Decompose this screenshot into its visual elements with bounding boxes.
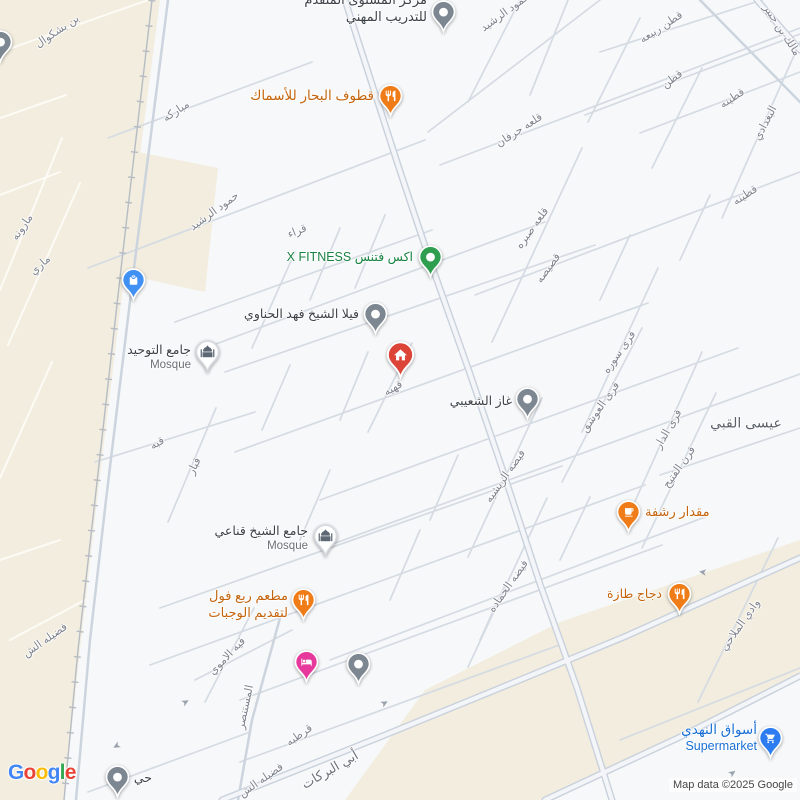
supermarket-pin[interactable] xyxy=(757,726,784,760)
google-logo-letter: G xyxy=(8,761,24,784)
mosque-tawhid-label[interactable]: جامع التوحيدMosque xyxy=(127,342,191,373)
villa-label[interactable]: فيلا الشيخ فهد الحناوي xyxy=(244,306,359,322)
training-center-label[interactable]: مركز المستوى المتقدمللتدريب المهني xyxy=(304,0,427,25)
oneway-arrow-icon: ➤ xyxy=(698,565,708,576)
google-logo-letter: e xyxy=(65,761,76,784)
villa-pin[interactable] xyxy=(362,302,389,336)
generic-poi-pin[interactable] xyxy=(0,30,14,64)
fitness-pin[interactable] xyxy=(417,245,444,279)
supermarket-label[interactable]: أسواق النهديSupermarket xyxy=(681,721,757,754)
map-canvas[interactable]: Google Map data ©2025 Google بن بشكوالمب… xyxy=(0,0,800,800)
home-pin[interactable] xyxy=(385,341,416,380)
street-label: عيسى القبي xyxy=(710,415,782,432)
google-logo[interactable]: Google xyxy=(8,761,76,785)
gas-station-pin[interactable] xyxy=(514,387,541,421)
generic-poi-pin[interactable] xyxy=(345,652,372,686)
roads-layer xyxy=(0,0,800,800)
hotel-pin[interactable] xyxy=(293,650,320,684)
cafe-label[interactable]: مقدار رشفة xyxy=(645,504,710,521)
mosque-qnaei-pin[interactable] xyxy=(312,524,339,558)
district-label[interactable]: حي xyxy=(134,770,152,786)
seafood-restaurant-label[interactable]: قطوف البحار للأسماك xyxy=(250,87,374,104)
mosque-tawhid-pin[interactable] xyxy=(194,340,221,374)
training-center-pin[interactable] xyxy=(430,0,457,34)
chicken-restaurant-pin[interactable] xyxy=(666,582,693,616)
seafood-restaurant-pin[interactable] xyxy=(377,84,404,118)
google-logo-letter: o xyxy=(24,761,36,784)
chicken-restaurant-label[interactable]: دجاج طازة xyxy=(607,586,662,602)
foul-restaurant-label[interactable]: مطعم ربع فوللتقديم الوجبات xyxy=(208,588,288,621)
generic-poi-pin[interactable] xyxy=(104,765,131,799)
google-logo-letter: o xyxy=(36,761,48,784)
google-logo-letter: g xyxy=(48,761,60,784)
gas-station-label[interactable]: غاز الشعيبي xyxy=(450,393,512,409)
mosque-qnaei-label[interactable]: جامع الشيخ قناعيMosque xyxy=(214,523,308,554)
foul-restaurant-pin[interactable] xyxy=(290,588,317,622)
fitness-label[interactable]: اكس فتنس X FITNESS xyxy=(287,249,413,265)
shopping-pin[interactable] xyxy=(120,268,147,302)
map-attribution: Map data ©2025 Google xyxy=(669,778,797,792)
cafe-pin[interactable] xyxy=(615,500,642,534)
